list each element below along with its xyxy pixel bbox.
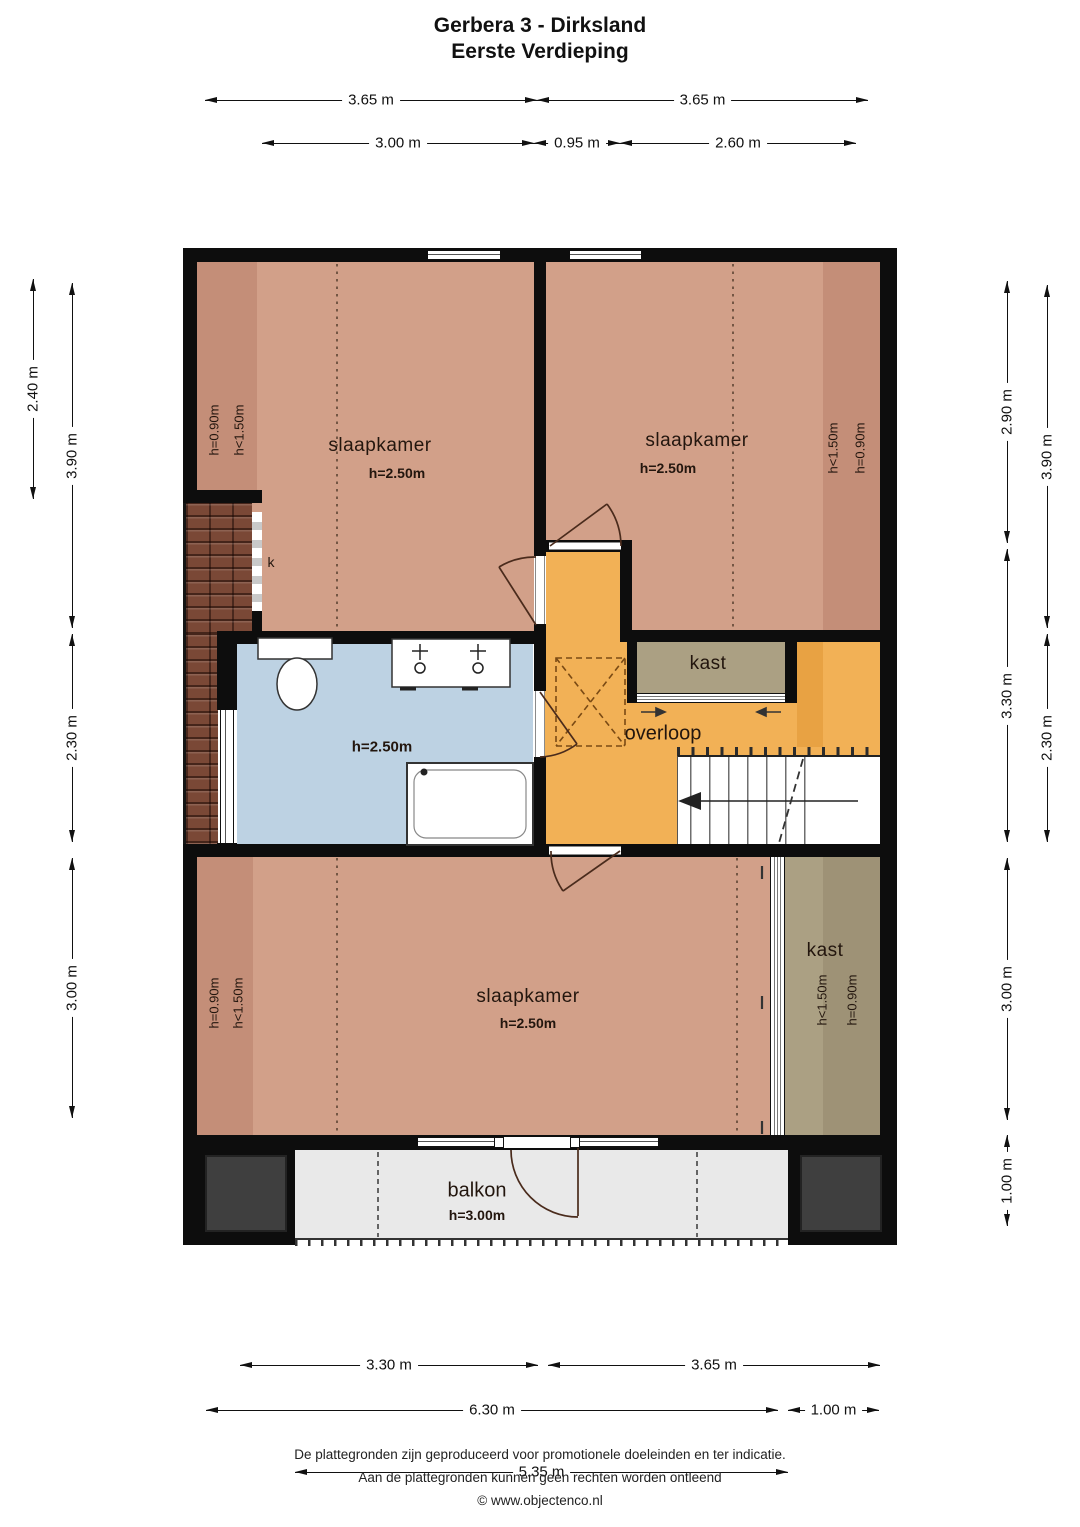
- dim-label: 3.65 m: [685, 1357, 743, 1374]
- dim-bottom-330: 3.30 m: [240, 1365, 538, 1366]
- dim-bottom-630: 6.30 m: [206, 1410, 778, 1411]
- closet-se-label: kast: [807, 940, 844, 962]
- door-opening-bedroom-ne: [549, 542, 621, 550]
- dim-right-290: 2.90 m: [1007, 281, 1008, 543]
- door-opening-bathroom: [535, 691, 545, 757]
- wall-bathroom-top: [217, 631, 545, 644]
- balcony-railing: [295, 1238, 788, 1246]
- bedroom-nw-slope-outer: h=0.90m: [207, 405, 222, 456]
- bedroom-ne-height: h=2.50m: [640, 460, 696, 476]
- wall-top: [183, 248, 897, 262]
- dim-label: 2.60 m: [709, 135, 767, 152]
- wall-corridor-left-b: [534, 757, 546, 857]
- dim-label: 3.90 m: [64, 427, 81, 485]
- dim-label: 3.00 m: [369, 135, 427, 152]
- dim-left-390: 3.90 m: [72, 283, 73, 628]
- dim-label: 2.30 m: [1039, 709, 1056, 767]
- closet-se-slope-outer: h=0.90m: [845, 975, 860, 1026]
- stairs-balustrade: [677, 747, 880, 755]
- wall-corridor-right: [620, 540, 632, 642]
- bedroom-nw-label: slaapkamer: [328, 435, 431, 457]
- dim-right-outer-230: 2.30 m: [1047, 634, 1048, 842]
- roof-tiles-lower: [183, 633, 218, 845]
- balcony-door-opening: [498, 1137, 578, 1148]
- dim-label: 3.00 m: [999, 960, 1016, 1018]
- dim-label: 2.40 m: [25, 360, 42, 418]
- dim-label: 2.90 m: [999, 383, 1016, 441]
- knee-wall-label: k: [268, 554, 275, 570]
- closet-mid-sliding-track: [637, 693, 785, 703]
- bathroom-height: h=2.50m: [352, 739, 412, 756]
- wall-niche-bottom: [252, 611, 262, 633]
- dim-top-260: 2.60 m: [620, 143, 856, 144]
- dim-left-240: 2.40 m: [33, 279, 34, 499]
- wall-bathroom-left-a: [217, 631, 237, 710]
- dim-left-230: 2.30 m: [72, 634, 73, 842]
- landing-corridor-floor: [546, 552, 620, 632]
- roof-tiles-upper: [183, 502, 252, 633]
- bedroom-ne-slope-inner: h<1.50m: [826, 423, 841, 474]
- wall-left-upper: [183, 248, 197, 492]
- dim-right-100: 1.00 m: [1007, 1135, 1008, 1226]
- bedroom-s-slope-outer: h=0.90m: [207, 978, 222, 1029]
- stairs-steps: [690, 757, 823, 844]
- bedroom-nw-height: h=2.50m: [369, 465, 425, 481]
- bedroom-ne-slope-outer: h=0.90m: [853, 423, 868, 474]
- window-bedroom-nw: [428, 250, 500, 260]
- closet-mid-label: kast: [690, 653, 727, 675]
- dim-bottom-365: 3.65 m: [548, 1365, 880, 1366]
- wall-right: [880, 248, 897, 1145]
- wall-middle: [183, 844, 897, 857]
- dim-top-300: 3.00 m: [262, 143, 534, 144]
- balcony-window-left: [418, 1137, 498, 1148]
- bedroom-s-label: slaapkamer: [476, 986, 579, 1008]
- roof-block-left: [205, 1155, 287, 1232]
- closet-se-slope-inner: h<1.50m: [815, 975, 830, 1026]
- dim-top-365-right: 3.65 m: [537, 100, 868, 101]
- dim-label: 6.30 m: [463, 1402, 521, 1419]
- landing-slope-strip: [797, 642, 823, 747]
- footer-disclaimer-1: De plattegronden zijn geproduceerd voor …: [294, 1447, 786, 1462]
- landing-label: overloop: [625, 723, 702, 746]
- dim-label: 3.30 m: [999, 667, 1016, 725]
- wall-left-lower: [183, 844, 197, 1145]
- balcony-height: h=3.00m: [449, 1207, 505, 1223]
- wall-bedroom-divider: [534, 262, 546, 556]
- wall-closet-mid-right: [785, 632, 797, 703]
- dim-right-outer-390: 3.90 m: [1047, 285, 1048, 628]
- dim-right-330: 3.30 m: [1007, 549, 1008, 842]
- door-opening-bedroom-s: [549, 846, 621, 855]
- dim-label: 3.65 m: [342, 92, 400, 109]
- dim-label: 2.30 m: [64, 709, 81, 767]
- bedroom-ne-label: slaapkamer: [645, 430, 748, 452]
- balcony-mullion-left: [494, 1137, 504, 1148]
- wall-left-step: [183, 490, 262, 503]
- dim-label: 1.00 m: [805, 1402, 863, 1419]
- roof-block-right: [800, 1155, 882, 1232]
- wall-closet-mid-left: [627, 632, 637, 703]
- bedroom-nw-slope-strip: [197, 262, 257, 490]
- dim-bottom-100: 1.00 m: [788, 1410, 879, 1411]
- window-bedroom-ne: [570, 250, 641, 260]
- floor-plan: slaapkamer h=2.50m h=0.90m h<1.50m slaap…: [0, 0, 1080, 1527]
- footer-disclaimer-2: Aan de plattegronden kunnen geen rechten…: [358, 1470, 721, 1485]
- footer-copyright: © www.objectenco.nl: [477, 1493, 603, 1508]
- dim-top-365-left: 3.65 m: [205, 100, 537, 101]
- balcony-label: balkon: [448, 1180, 507, 1203]
- dim-label: 3.90 m: [1039, 428, 1056, 486]
- dim-label: 0.95 m: [548, 135, 606, 152]
- dim-label: 3.30 m: [360, 1357, 418, 1374]
- dim-label: 3.65 m: [674, 92, 732, 109]
- closet-se-sliding-track: [770, 857, 785, 1135]
- dim-label: 3.00 m: [64, 959, 81, 1017]
- dim-top-095: 0.95 m: [534, 143, 620, 144]
- plan-subtitle: Eerste Verdieping: [451, 40, 628, 64]
- bedroom-s-slope-inner: h<1.50m: [231, 978, 246, 1029]
- dim-left-300: 3.00 m: [72, 858, 73, 1118]
- dim-right-300: 3.00 m: [1007, 858, 1008, 1120]
- dim-label: 1.00 m: [999, 1152, 1016, 1210]
- door-opening-bedroom-nw: [535, 556, 545, 624]
- balcony-floor: [295, 1150, 788, 1238]
- plan-title: Gerbera 3 - Dirksland: [434, 14, 646, 38]
- bedroom-nw-slope-inner: h<1.50m: [232, 405, 247, 456]
- wall-bedroom-ne-bottom: [620, 630, 880, 642]
- bedroom-s-height: h=2.50m: [500, 1015, 556, 1031]
- knee-wall-hatch: [252, 512, 262, 611]
- window-bathroom: [220, 710, 234, 843]
- balcony-window-right: [578, 1137, 658, 1148]
- balcony-mullion-right: [570, 1137, 580, 1148]
